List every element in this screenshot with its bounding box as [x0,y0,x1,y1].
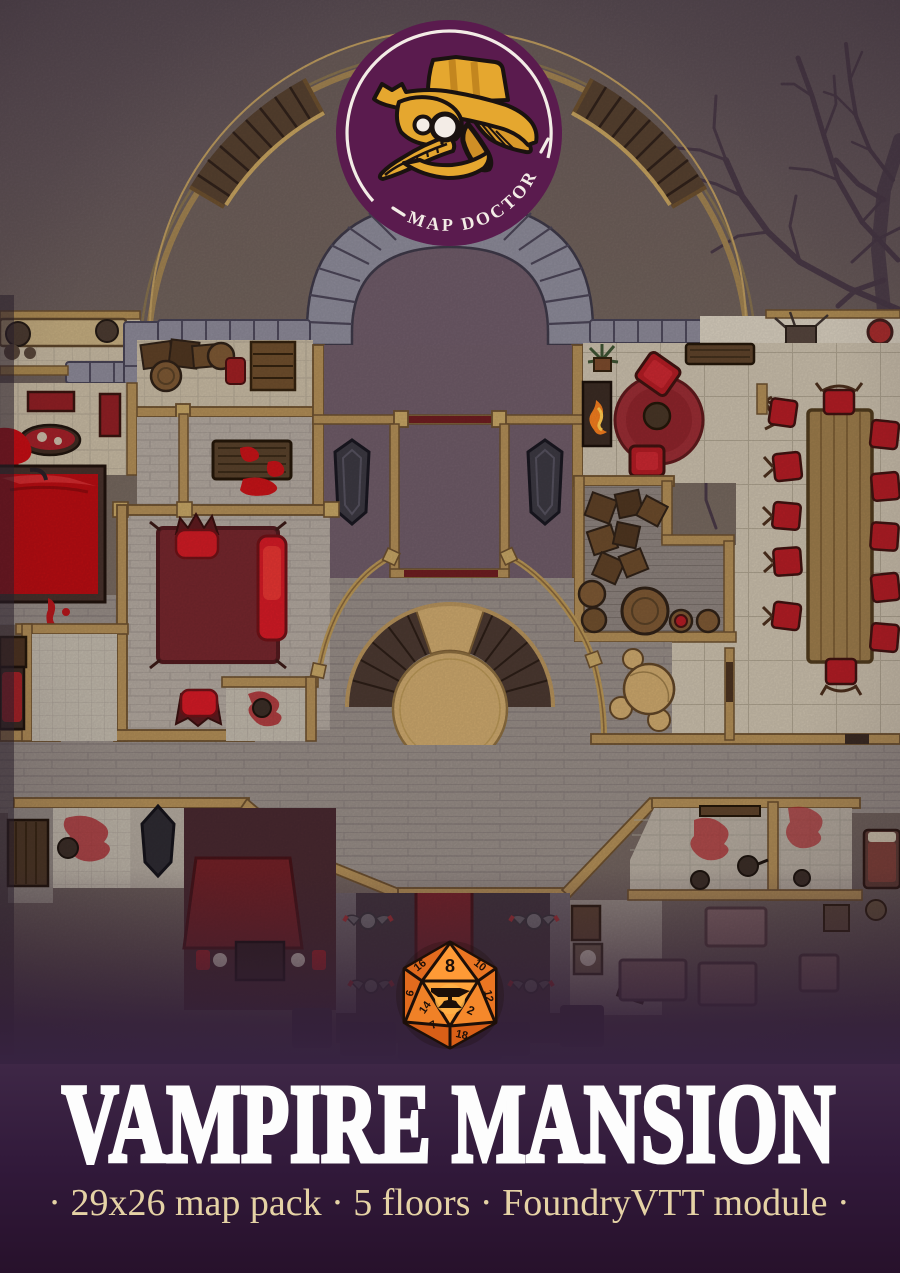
svg-text:12: 12 [481,989,495,1003]
svg-text:8: 8 [445,956,455,976]
svg-text:18: 18 [455,1028,469,1042]
svg-text:· 29x26 map pack · 5 floors ·: · 29x26 map pack · 5 floors · FoundryVTT… [48,1182,849,1224]
svg-text:VAMPIRE MANSION: VAMPIRE MANSION [62,1063,836,1186]
